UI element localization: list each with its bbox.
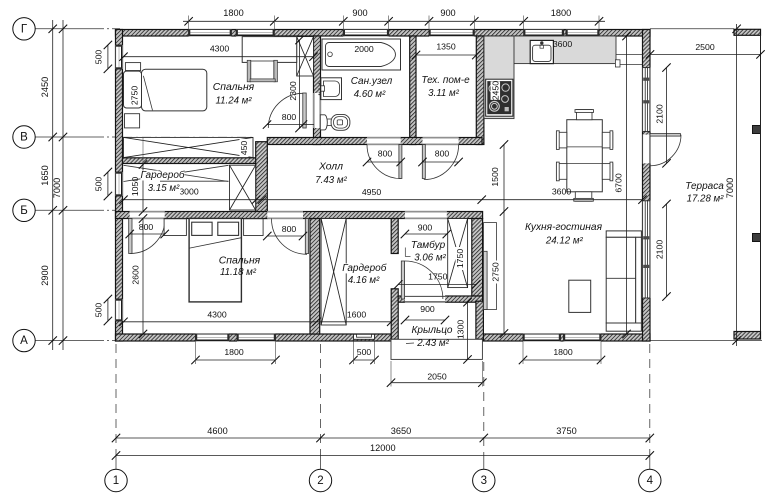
svg-text:2000: 2000	[354, 44, 373, 54]
svg-text:1800: 1800	[551, 8, 571, 18]
svg-text:1800: 1800	[223, 8, 243, 18]
svg-text:7000: 7000	[725, 178, 735, 198]
svg-text:4600: 4600	[207, 426, 227, 436]
svg-text:500: 500	[94, 303, 104, 318]
svg-text:Тех. пом-е: Тех. пом-е	[421, 75, 470, 86]
svg-text:3650: 3650	[391, 426, 411, 436]
svg-text:2450: 2450	[490, 81, 500, 100]
svg-text:А: А	[20, 335, 28, 347]
svg-text:3600: 3600	[553, 39, 572, 49]
svg-text:1: 1	[113, 475, 119, 487]
svg-text:800: 800	[378, 149, 393, 159]
svg-text:Г: Г	[21, 23, 28, 35]
svg-text:Сан.узел: Сан.узел	[351, 76, 393, 87]
svg-text:1750: 1750	[428, 271, 447, 281]
svg-text:2300: 2300	[288, 81, 298, 100]
svg-text:500: 500	[357, 347, 372, 357]
svg-text:Тамбур: Тамбур	[411, 239, 446, 251]
svg-text:2900: 2900	[40, 265, 50, 285]
svg-text:1500: 1500	[490, 167, 500, 186]
svg-text:3750: 3750	[556, 426, 576, 436]
svg-text:Крыльцо: Крыльцо	[412, 325, 453, 336]
svg-text:4300: 4300	[207, 310, 226, 320]
svg-text:1600: 1600	[347, 309, 366, 319]
svg-text:1350: 1350	[436, 41, 455, 51]
svg-text:Кухня-гостиная: Кухня-гостиная	[525, 222, 603, 233]
svg-text:Гардероб: Гардероб	[342, 262, 386, 274]
svg-text:11.18 м²: 11.18 м²	[220, 267, 257, 278]
svg-text:500: 500	[94, 177, 104, 192]
svg-text:3600: 3600	[552, 186, 571, 196]
svg-text:Гардероб: Гардероб	[140, 169, 184, 181]
svg-text:4: 4	[647, 475, 654, 487]
svg-text:В: В	[20, 132, 28, 144]
svg-text:900: 900	[352, 8, 367, 18]
svg-text:3.15 м²: 3.15 м²	[148, 183, 180, 194]
svg-text:12000: 12000	[370, 443, 396, 453]
svg-text:3.06 м²: 3.06 м²	[414, 253, 446, 264]
svg-text:800: 800	[282, 112, 297, 122]
svg-text:2100: 2100	[655, 240, 665, 259]
svg-text:1800: 1800	[224, 347, 243, 357]
svg-text:2450: 2450	[40, 77, 50, 97]
svg-text:3: 3	[481, 475, 487, 487]
svg-text:450: 450	[239, 141, 249, 156]
svg-text:1800: 1800	[553, 347, 572, 357]
svg-text:1650: 1650	[40, 165, 50, 185]
svg-text:4.60 м²: 4.60 м²	[354, 89, 386, 100]
svg-text:800: 800	[435, 149, 450, 159]
svg-text:Спальня: Спальня	[219, 256, 261, 267]
svg-text:800: 800	[139, 222, 154, 232]
svg-text:2: 2	[317, 475, 323, 487]
svg-text:2050: 2050	[427, 372, 446, 382]
svg-text:2500: 2500	[695, 42, 714, 52]
svg-text:2600: 2600	[131, 265, 141, 284]
svg-text:Холл: Холл	[318, 162, 343, 173]
svg-text:7000: 7000	[52, 178, 62, 198]
svg-text:2750: 2750	[130, 86, 140, 105]
svg-text:900: 900	[420, 304, 435, 314]
svg-text:Терраса: Терраса	[685, 181, 724, 192]
svg-text:900: 900	[418, 222, 433, 232]
svg-text:2.43 м²: 2.43 м²	[416, 338, 449, 349]
svg-text:1050: 1050	[130, 177, 140, 196]
svg-text:4950: 4950	[362, 187, 381, 197]
svg-text:Б: Б	[20, 205, 28, 217]
svg-text:500: 500	[94, 50, 104, 65]
svg-text:17.28 м²: 17.28 м²	[687, 194, 725, 205]
svg-text:7.43 м²: 7.43 м²	[315, 175, 347, 186]
svg-text:4300: 4300	[210, 44, 229, 54]
svg-text:1300: 1300	[456, 320, 466, 339]
svg-text:24.12 м²: 24.12 м²	[545, 236, 584, 247]
svg-text:Спальня: Спальня	[213, 82, 255, 93]
svg-text:3.11 м²: 3.11 м²	[428, 88, 459, 99]
svg-text:1750: 1750	[455, 249, 465, 268]
svg-text:4.16 м²: 4.16 м²	[348, 275, 380, 286]
svg-text:900: 900	[440, 8, 455, 18]
svg-text:6700: 6700	[614, 173, 624, 192]
svg-text:3000: 3000	[179, 186, 198, 196]
svg-text:2100: 2100	[655, 104, 665, 123]
svg-text:2750: 2750	[491, 262, 501, 281]
svg-text:800: 800	[282, 224, 297, 234]
svg-text:11.24 м²: 11.24 м²	[215, 96, 252, 107]
